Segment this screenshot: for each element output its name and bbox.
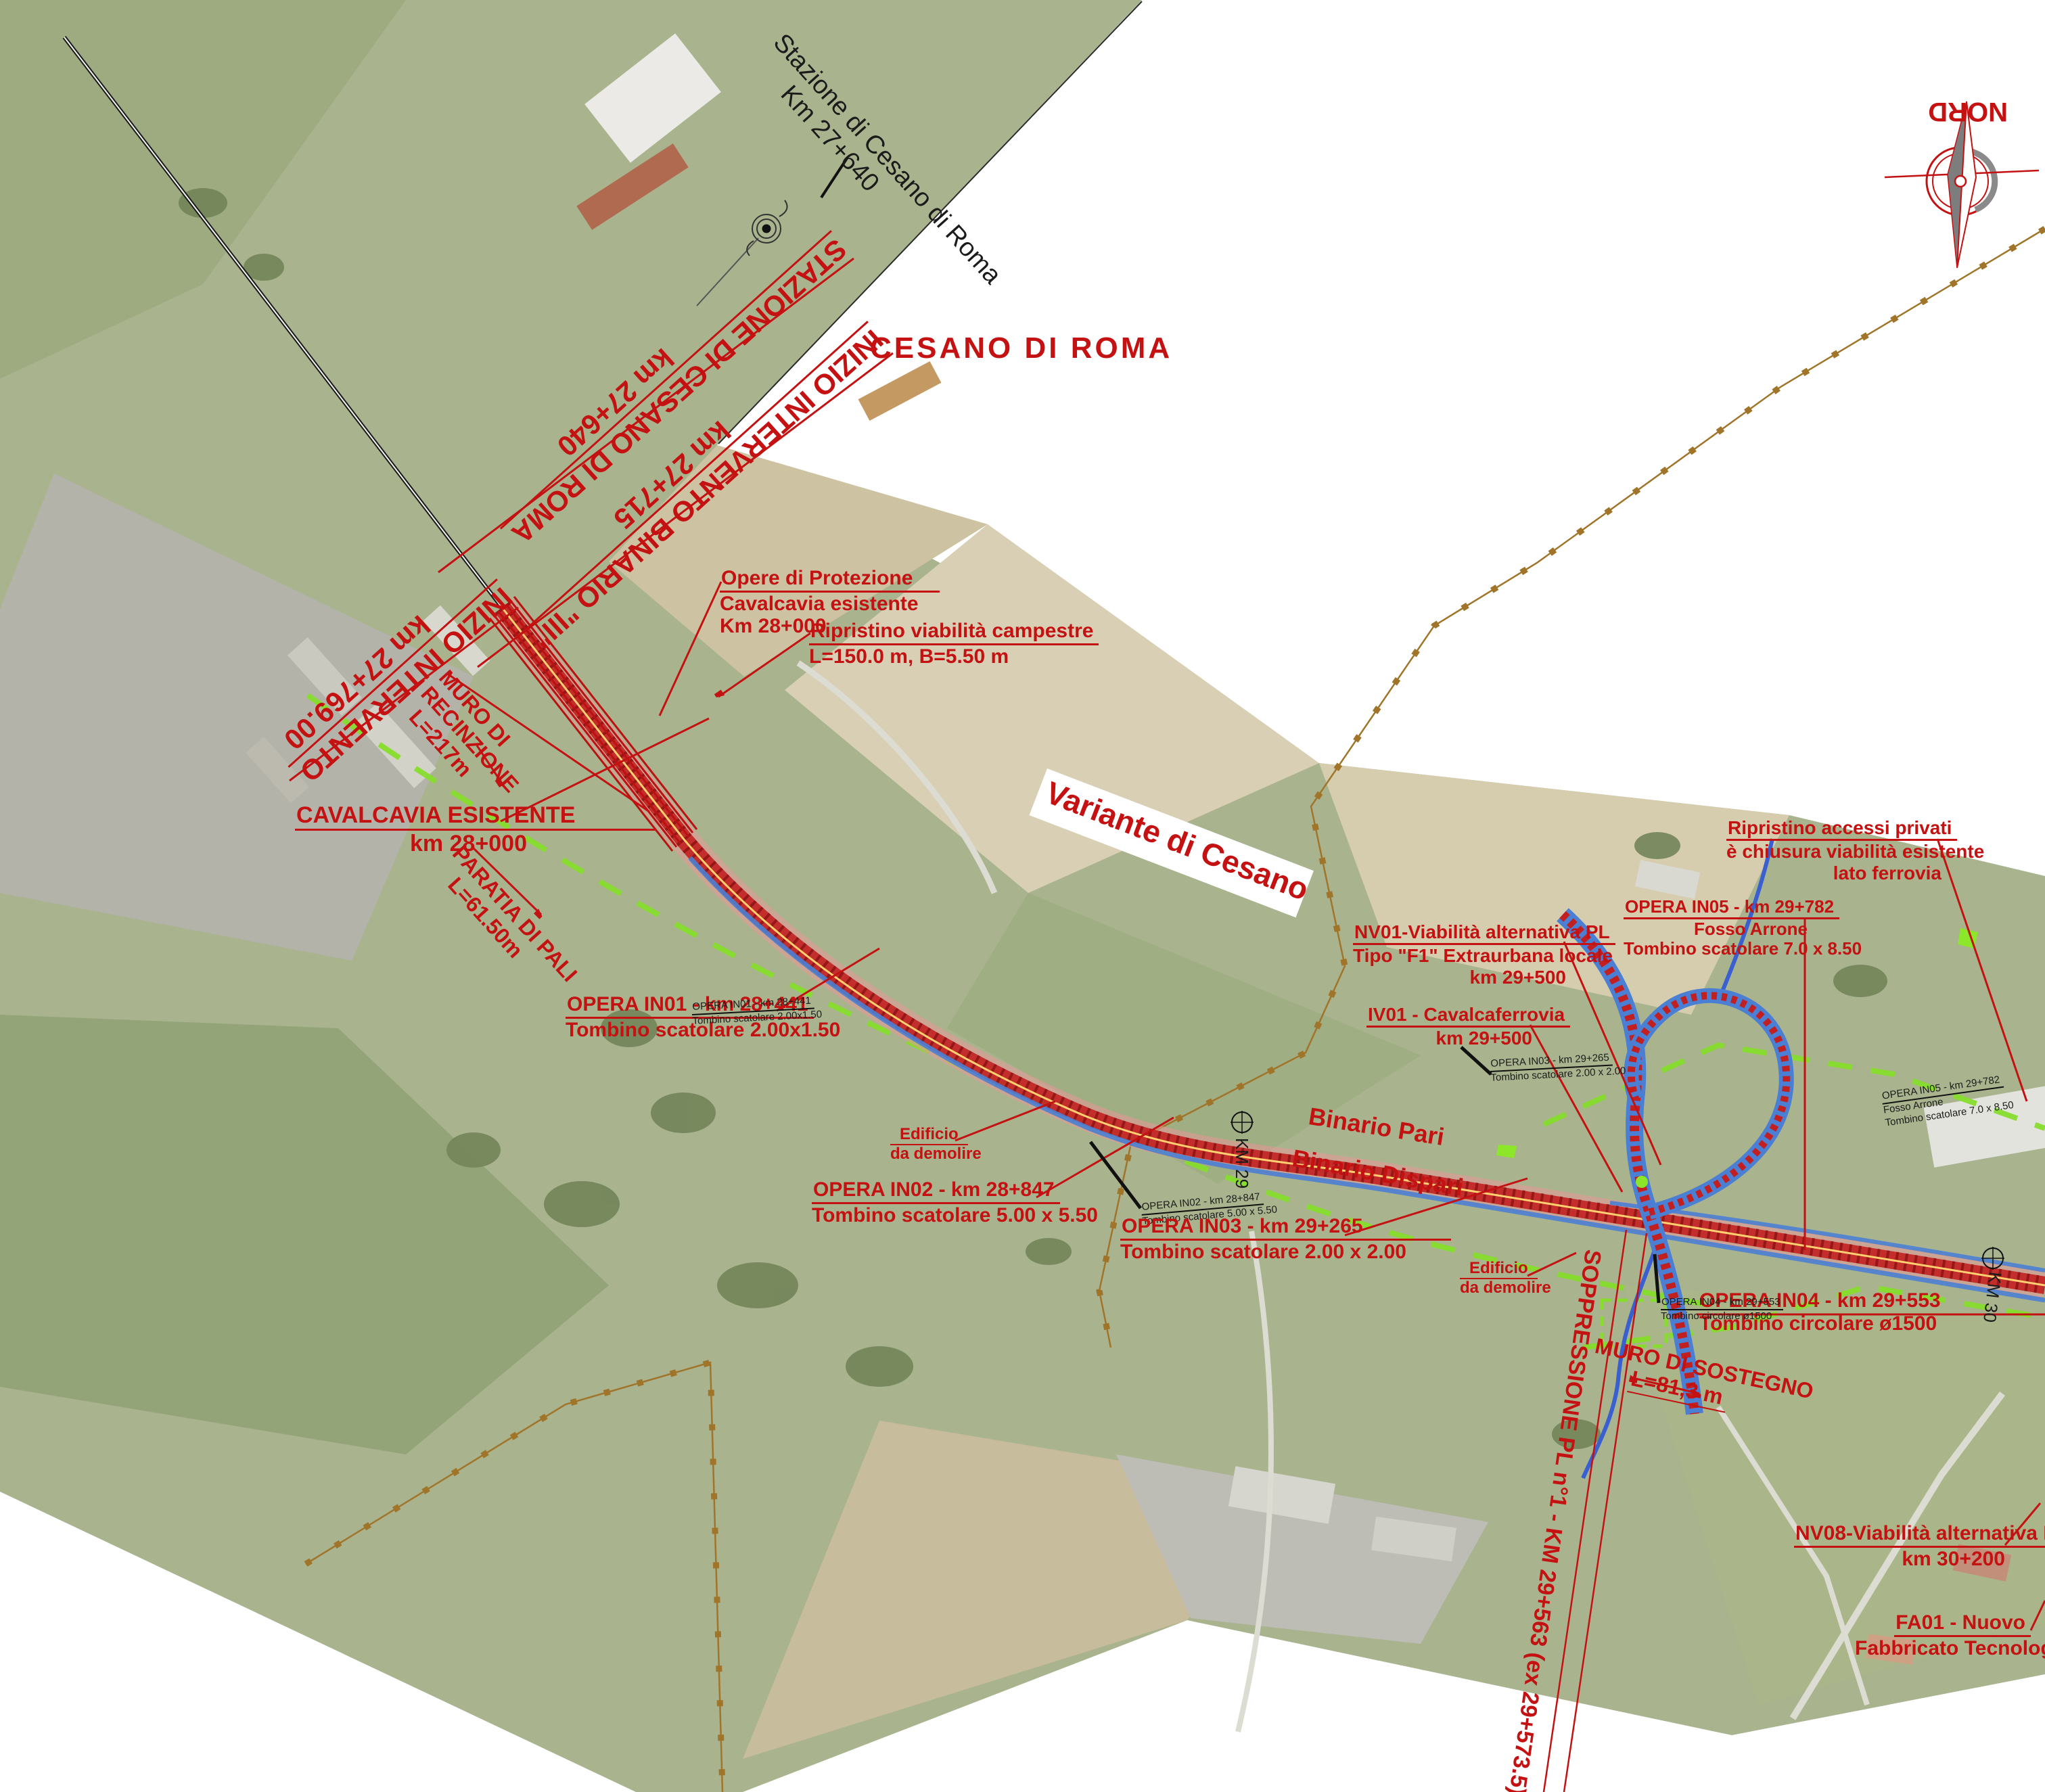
label-ripristino-accessi: Ripristino accessi privati è chiusura vi…: [1726, 817, 1941, 883]
label-edificio-demolire-2: Edificio da demolire: [1460, 1260, 1530, 1297]
label-nv01: NV01-Viabilità alternativa PL Tipo "F1" …: [1353, 921, 1566, 988]
km29-marker: KM 29: [1232, 1138, 1251, 1189]
label-nv08: NV08-Viabilità alternativa PL km 30+200: [1794, 1522, 2005, 1570]
sublabel-opera-in04: OPERA IN04 - km 29+553 Tombino circolare…: [1661, 1296, 1783, 1323]
label-cavalcavia-esistente: CAVALCAVIA ESISTENTE km 28+000: [295, 802, 656, 856]
label-opera-in05: OPERA IN05 - km 29+782 Fosso Arrone Tomb…: [1624, 897, 1808, 959]
place-title: CESANO DI ROMA: [870, 331, 1172, 365]
north-compass-icon: [1885, 101, 2039, 268]
north-label: NORD: [1933, 96, 2008, 127]
label-edificio-demolire-1: Edificio da demolire: [890, 1126, 961, 1164]
label-opera-in03: OPERA IN03 - km 29+265 Tombino scatolare…: [1120, 1215, 1451, 1263]
label-iv01: IV01 - Cavalcaferrovia km 29+500: [1366, 1004, 1532, 1049]
label-ripristino-campestre: Ripristino viabilità campestre L=150.0 m…: [809, 620, 1099, 668]
label-opera-in02: OPERA IN02 - km 28+847 Tombino scatolare…: [812, 1178, 1098, 1226]
label-fa01: FA01 - Nuovo Fabbricato Tecnologico: [1855, 1611, 2031, 1659]
railway-plan-map: Stazione di Cesano di Roma Km 27+640 CES…: [0, 0, 2045, 1792]
